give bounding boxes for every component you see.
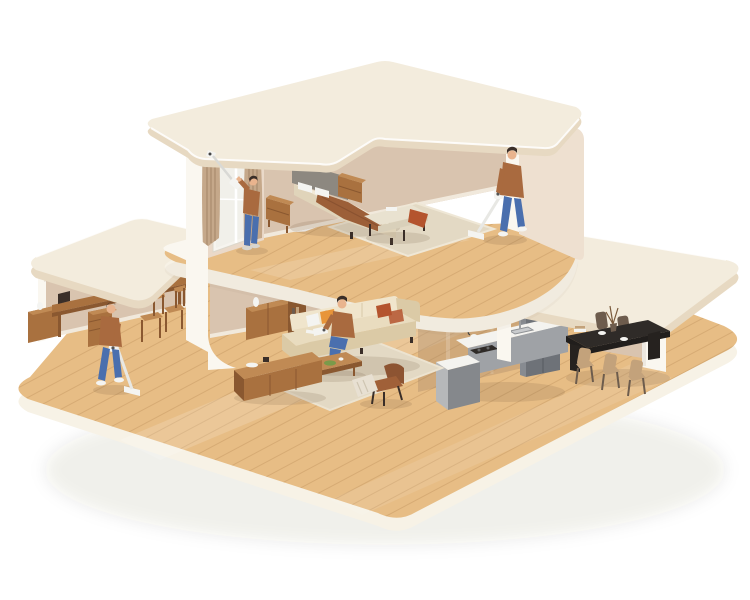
head [338, 300, 347, 309]
scene-svg [0, 0, 750, 600]
torso [331, 311, 355, 338]
cabinet-vase [37, 302, 43, 310]
isometric-house-illustration [0, 0, 750, 600]
console-tray [246, 363, 258, 368]
books [574, 329, 586, 332]
island-right-face [448, 362, 480, 410]
console-item [263, 357, 269, 362]
torso [243, 188, 260, 216]
kettle [470, 334, 478, 342]
cup [598, 331, 606, 335]
head [107, 305, 116, 314]
plate-of-food [324, 360, 336, 365]
vase [610, 323, 617, 332]
cup [339, 357, 344, 360]
desk-leg [58, 315, 61, 337]
torso [500, 162, 524, 198]
head [508, 151, 517, 160]
cup [620, 337, 628, 341]
book [386, 207, 397, 211]
